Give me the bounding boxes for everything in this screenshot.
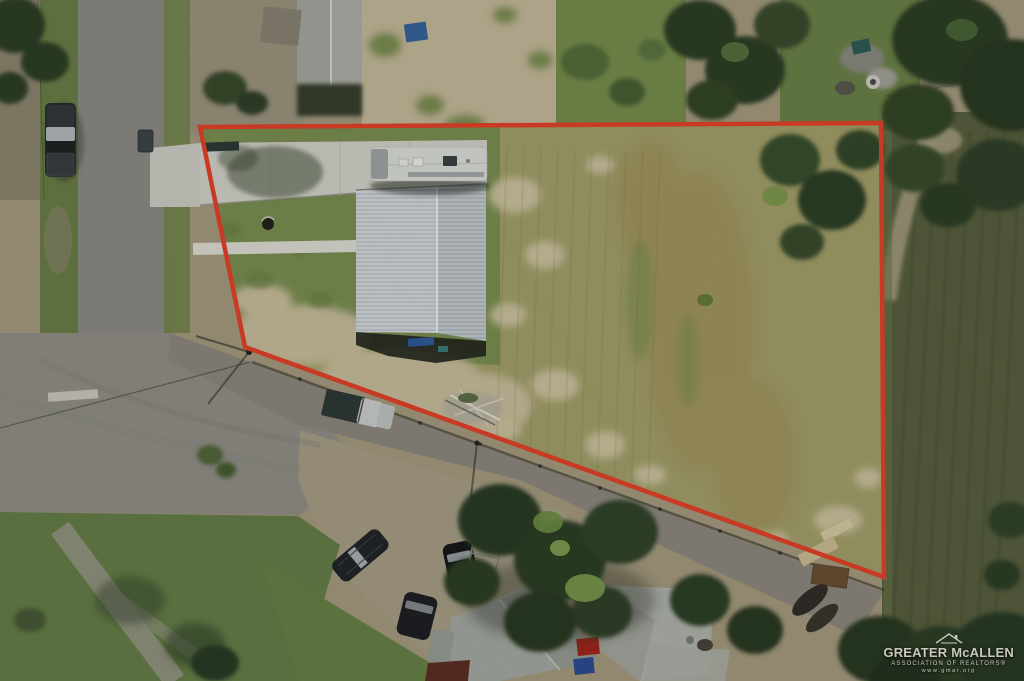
- roof-logo-icon: [932, 631, 966, 644]
- aerial-photo-canvas: [0, 0, 1024, 681]
- watermark-tagline: ASSOCIATION OF REALTORS®: [883, 661, 1014, 667]
- photo-grain-overlay: [0, 0, 1024, 681]
- watermark-website: www.gmar.org: [883, 668, 1014, 674]
- aerial-photo: GREATER McALLEN ASSOCIATION OF REALTORS®…: [0, 0, 1024, 681]
- watermark: GREATER McALLEN ASSOCIATION OF REALTORS®…: [883, 631, 1014, 674]
- watermark-org-name: GREATER McALLEN: [883, 645, 1014, 660]
